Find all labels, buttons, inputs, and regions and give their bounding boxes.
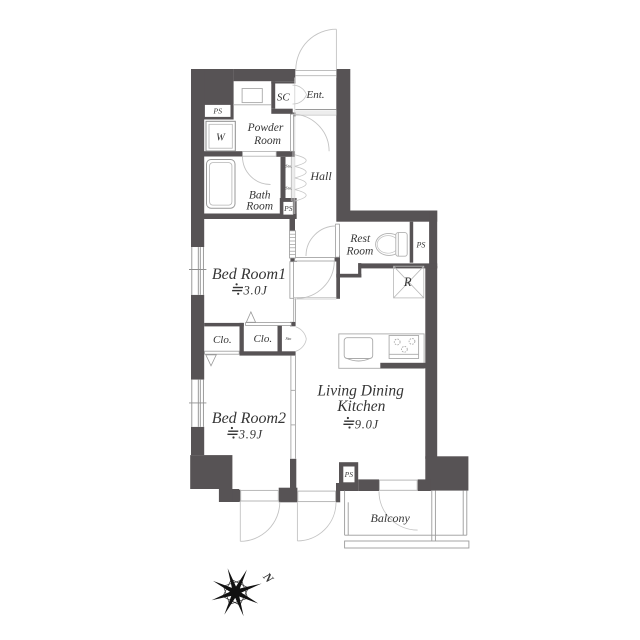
svg-text:3.9J: 3.9J (238, 427, 264, 441)
svg-text:Clo.: Clo. (213, 334, 232, 346)
svg-text:Sto: Sto (285, 336, 292, 341)
svg-text:Bed Room1: Bed Room1 (212, 266, 286, 283)
svg-text:PS: PS (344, 470, 354, 479)
svg-text:Sto.: Sto. (285, 163, 292, 168)
svg-text:Hall: Hall (309, 169, 332, 183)
svg-text:Room: Room (253, 135, 281, 147)
svg-text:PS: PS (415, 241, 425, 250)
svg-text:Ent.: Ent. (305, 89, 324, 101)
svg-text:Living Dining: Living Dining (316, 383, 404, 400)
svg-text:Room: Room (345, 245, 373, 257)
svg-text:N: N (260, 569, 278, 586)
svg-text:3.0J: 3.0J (243, 284, 269, 298)
svg-text:W: W (216, 132, 226, 143)
svg-text:Rest: Rest (349, 233, 371, 245)
svg-text:PS: PS (212, 107, 222, 116)
svg-text:Balcony: Balcony (371, 511, 411, 525)
svg-text:PS: PS (283, 204, 293, 213)
svg-text:Sto.: Sto. (285, 186, 292, 191)
svg-text:Room: Room (245, 201, 273, 213)
svg-text:9.0J: 9.0J (355, 417, 380, 431)
svg-text:R: R (403, 275, 412, 289)
svg-text:Clo.: Clo. (253, 333, 272, 345)
svg-text:Bed Room2: Bed Room2 (212, 410, 286, 427)
svg-text:Powder: Powder (247, 122, 284, 134)
svg-text:Kitchen: Kitchen (336, 398, 385, 415)
svg-text:SC: SC (277, 91, 291, 103)
